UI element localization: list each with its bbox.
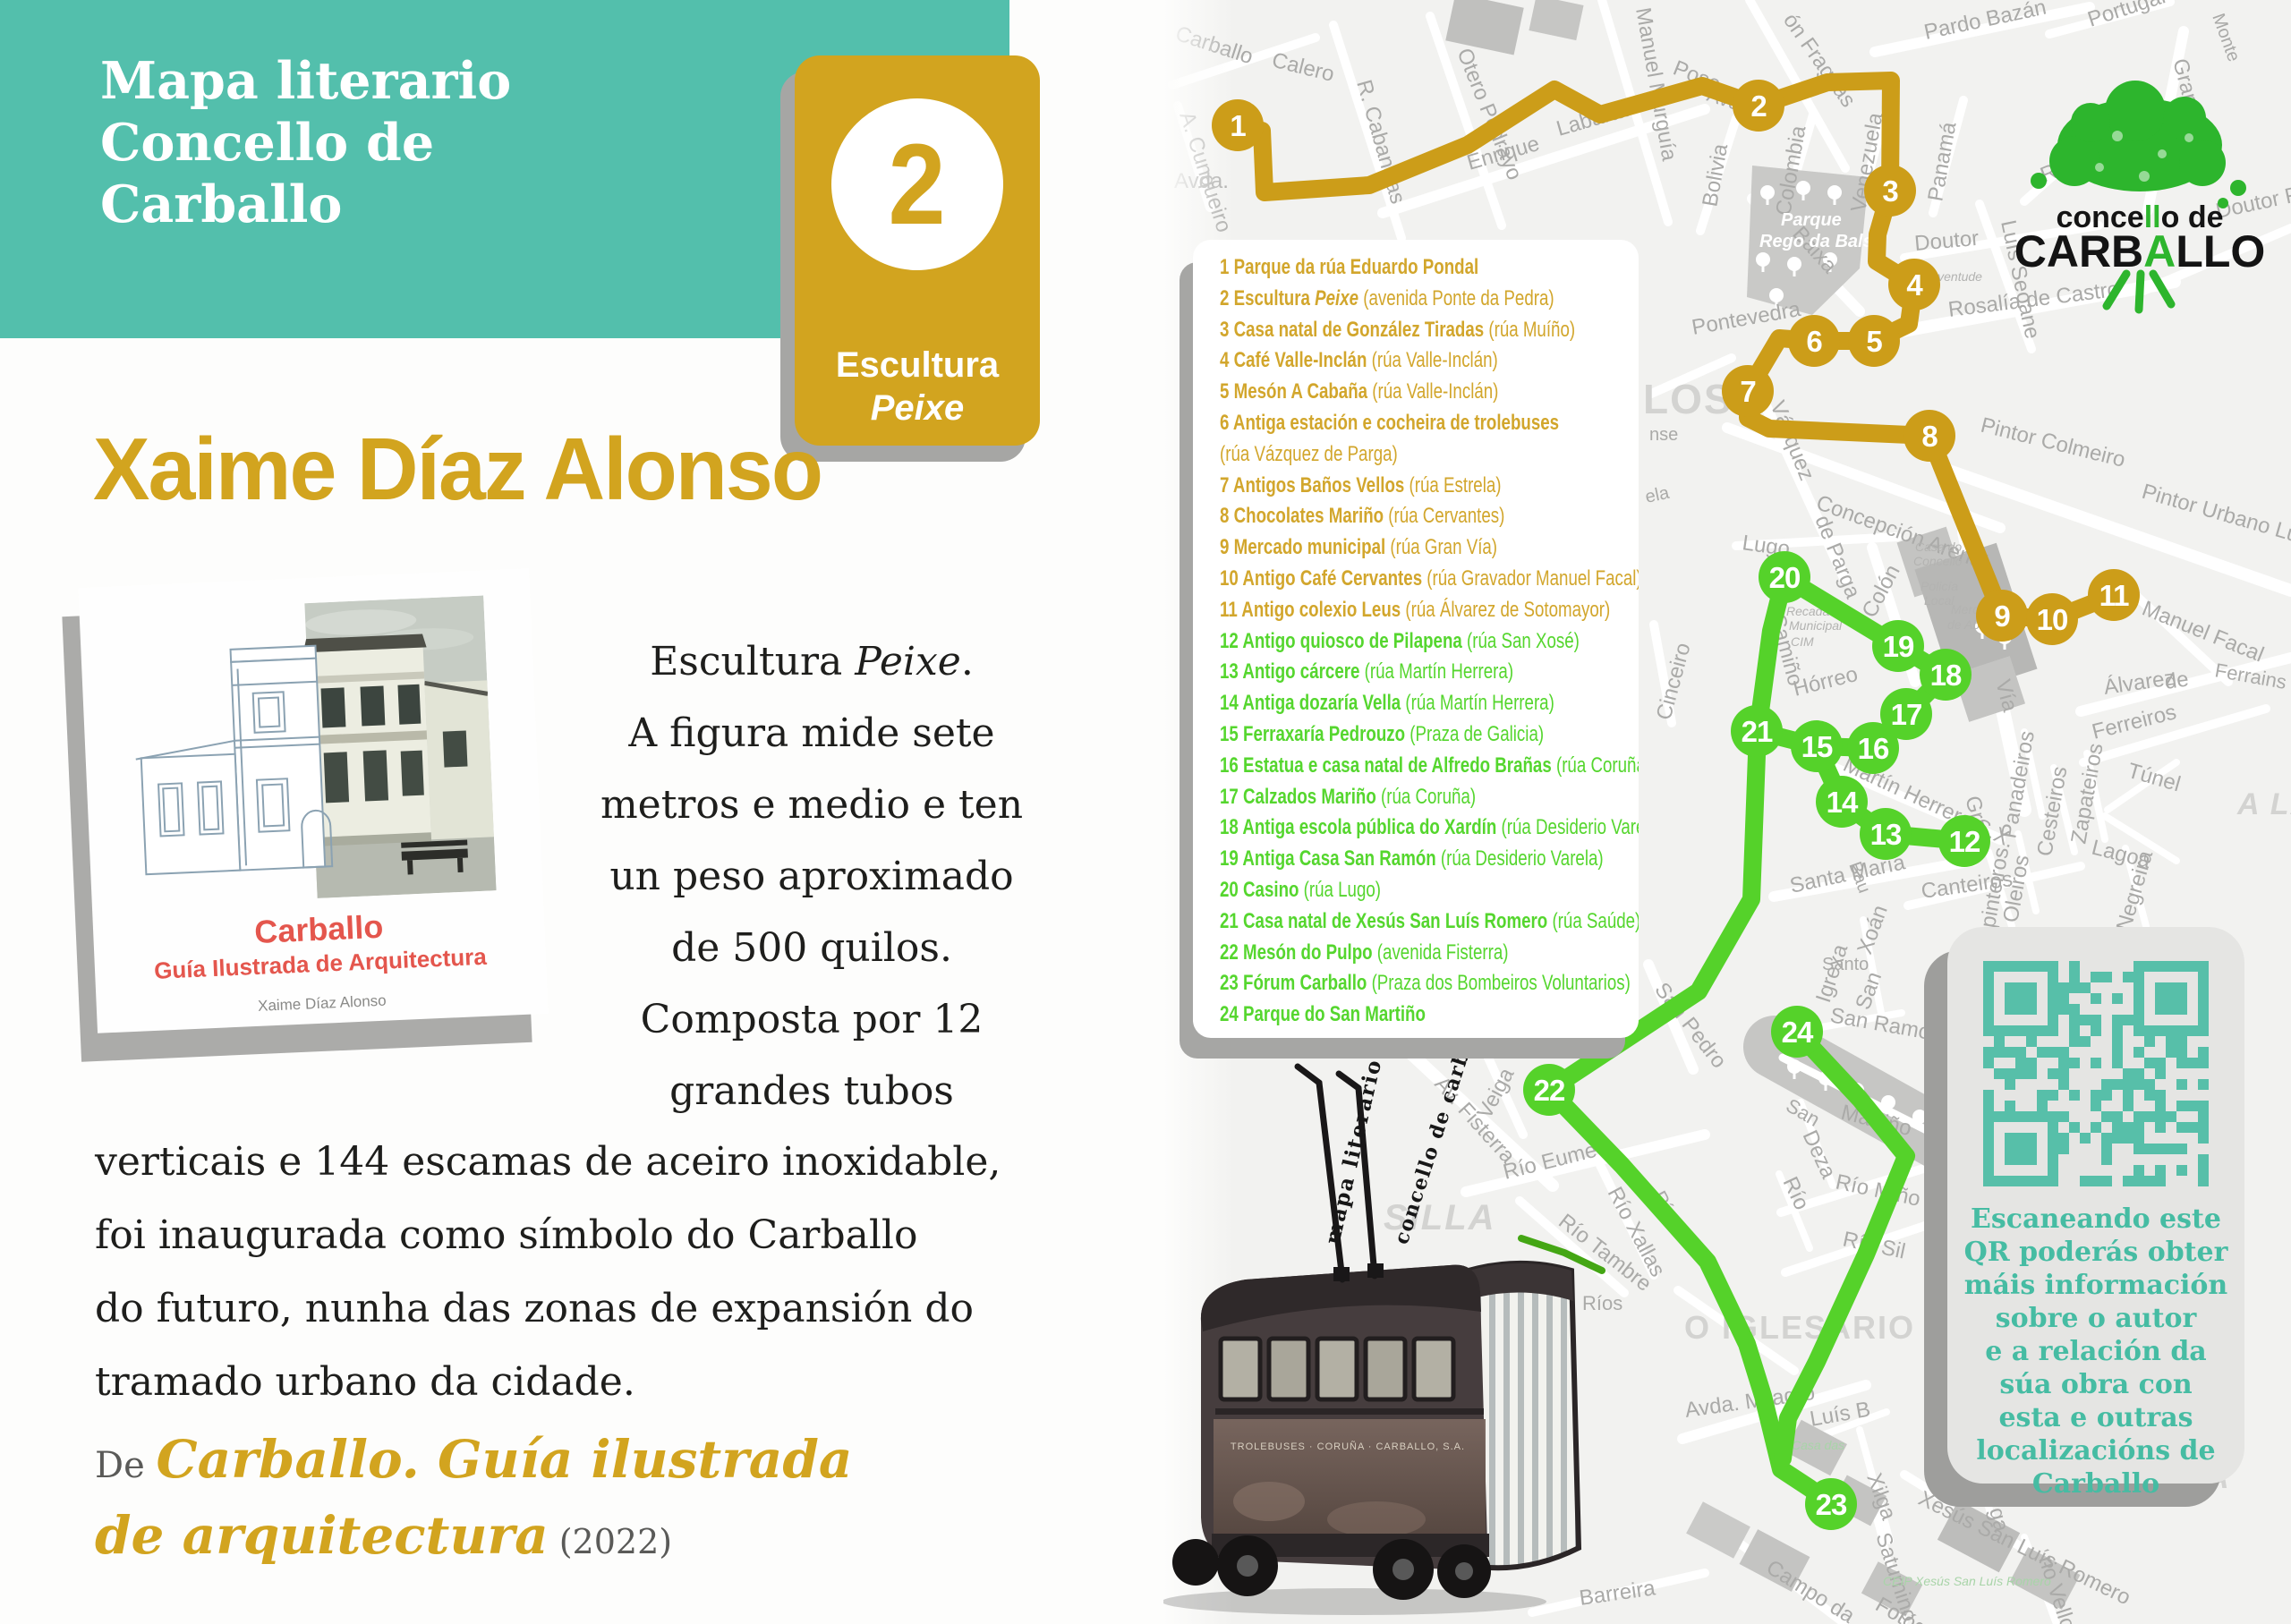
building-label: CIM <box>1791 634 1814 649</box>
pole-base <box>1367 1263 1384 1278</box>
marker-number: 24 <box>1782 1016 1814 1049</box>
legend-item-number: 9 <box>1220 535 1229 559</box>
legend-item-name: Casa natal de Xesús San Luís Romero <box>1243 909 1547 933</box>
marker-number: 21 <box>1742 715 1773 748</box>
map-marker-12: 12 <box>1938 815 1990 867</box>
legend-item-5: 5 Mesón A Cabaña (rúa Valle-Inclán) <box>1220 377 1546 408</box>
description-line: metros e medio e ten <box>530 769 1094 841</box>
marker-number: 4 <box>1906 268 1923 302</box>
legend-item-21: 21 Casa natal de Xesús San Luís Romero (… <box>1220 906 1546 938</box>
bus-side-text: TROLEBUSES · CORUÑA · CARBALLO, S.A. <box>1231 1441 1465 1452</box>
legend-item-name: Antigo cárcere <box>1242 659 1359 684</box>
legend-item-19: 19 Antiga Casa San Ramón (rúa Desiderio … <box>1220 844 1546 875</box>
legend-item-street: (rúa Coruña) <box>1381 785 1476 809</box>
legend-item-name: Fórum Carballo <box>1243 971 1367 995</box>
marker-number: 1 <box>1230 109 1246 142</box>
legend-item-number: 3 <box>1220 318 1229 342</box>
pole-base <box>1333 1267 1350 1281</box>
legend-item-number: 19 <box>1220 846 1239 871</box>
map-marker-19: 19 <box>1872 620 1924 672</box>
title-line: Concello de <box>100 112 511 174</box>
legend-item-street: (rúa Valle-Inclán) <box>1372 348 1498 372</box>
district-label: A LA <box>2236 787 2291 821</box>
legend-item-number: 4 <box>1220 348 1229 372</box>
description-line: Escultura Peixe. <box>530 626 1094 698</box>
map-marker-4: 4 <box>1888 259 1940 310</box>
marker-number: 14 <box>1827 786 1859 819</box>
location-badge: 2 Escultura Peixe <box>795 55 1040 446</box>
street-label: Santo <box>1822 955 1869 974</box>
legend-item-street: (rúa Coruña) <box>1556 753 1639 778</box>
marker-number: 18 <box>1930 659 1962 692</box>
building-label: Casa do <box>1915 540 1962 554</box>
description-line: un peso aproximado <box>530 841 1094 913</box>
map-marker-22: 22 <box>1523 1064 1575 1116</box>
legend-item-name: Mesón do Pulpo <box>1243 940 1373 965</box>
legend-item-street: (rúa Gran Vía) <box>1390 535 1497 559</box>
bus-shadow <box>1162 1588 1546 1615</box>
legend-item-name: Casino <box>1243 878 1299 902</box>
map-marker-5: 5 <box>1848 315 1900 367</box>
legend-item-street: (rúa San Xosé) <box>1467 629 1580 653</box>
legend-item-name: Calzados Mariño <box>1243 785 1376 809</box>
legend-item-6: 6 Antiga estación e cocheira de trolebus… <box>1220 408 1546 439</box>
legend-item-number: 6 <box>1220 411 1229 435</box>
qr-code <box>1983 961 2209 1186</box>
district-label: LOS <box>1643 376 1733 422</box>
book-cover-art <box>126 595 497 906</box>
marker-number: 6 <box>1806 325 1822 358</box>
page-title: Mapa literario Concello de Carballo <box>100 50 511 235</box>
legend-item-name: Café Valle-Inclán <box>1234 348 1367 372</box>
legend-item-number: 21 <box>1220 909 1239 933</box>
legend-item-street: (Praza dos Bombeiros Voluntarios) <box>1372 971 1631 995</box>
description-line: de 500 quilos. <box>530 913 1094 984</box>
legend-item-name: Chocolates Mariño <box>1234 504 1384 528</box>
qr-caption-line: Carballo <box>1947 1467 2244 1501</box>
description-line: foi inaugurada como símbolo do Carballo <box>95 1199 1151 1272</box>
building-label: Municipal <box>1789 618 1843 633</box>
legend-item-8: 8 Chocolates Mariño (rúa Cervantes) <box>1220 501 1546 532</box>
badge-number: 2 <box>889 119 946 251</box>
legend-item-number: 14 <box>1220 691 1239 715</box>
title-line: Mapa literario <box>100 50 511 112</box>
description-full-text: verticais e 144 escamas de aceiro inoxid… <box>95 1126 1151 1419</box>
legend-item-street: (rúa Desiderio Varela) <box>1502 815 1639 839</box>
map-marker-1: 1 <box>1212 99 1264 151</box>
legend-item-17: 17 Calzados Mariño (rúa Coruña) <box>1220 782 1546 813</box>
legend-item-6-wrap: (rúa Vázquez de Parga) <box>1220 439 1546 471</box>
legend-item-street: (rúa Cervantes) <box>1388 504 1504 528</box>
legend-item-street: (rúa Lugo) <box>1304 878 1381 902</box>
rust-spot <box>1233 1482 1305 1521</box>
legend-item-number: 15 <box>1220 722 1239 746</box>
legend-item-name: Casa natal de González Tiradas <box>1234 318 1485 342</box>
map-marker-21: 21 <box>1731 705 1783 757</box>
legend-item-street: (rúa Valle-Inclán) <box>1372 379 1498 404</box>
legend-item-number: 12 <box>1220 629 1239 653</box>
legend-item-number: 22 <box>1220 940 1239 965</box>
description-line: verticais e 144 escamas de aceiro inoxid… <box>95 1126 1151 1199</box>
legend-item-number: 5 <box>1220 379 1229 404</box>
rust-spot <box>1327 1501 1426 1537</box>
legend-item-name: Mercado municipal <box>1234 535 1386 559</box>
building-label: Concello <box>1913 554 1963 568</box>
book-cover: Carballo Guía Ilustrada de Arquitectura … <box>78 568 548 1033</box>
description-line: grandes tubos <box>530 1056 1094 1127</box>
map-marker-13: 13 <box>1860 808 1912 860</box>
legend-item-street: (rúa Martín Herrera) <box>1405 691 1554 715</box>
marker-number: 10 <box>2037 603 2068 636</box>
legend-item-name: Parque do San Martiño <box>1243 1002 1426 1026</box>
legend-item-name: Antiga escola pública do Xardín <box>1242 815 1496 839</box>
marker-number: 5 <box>1866 325 1882 358</box>
building-label: Policía <box>1921 579 1958 593</box>
legend-item-street: (rúa Martín Herrera) <box>1365 659 1513 684</box>
map-marker-24: 24 <box>1771 1006 1823 1058</box>
legend-item-4: 4 Café Valle-Inclán (rúa Valle-Inclán) <box>1220 345 1546 377</box>
legend-item-name: Parque da rúa Eduardo Pondal <box>1234 255 1479 279</box>
legend-item-3: 3 Casa natal de González Tiradas (rúa Mu… <box>1220 315 1546 346</box>
badge-label: Escultura <box>795 345 1040 386</box>
legend-item-18: 18 Antiga escola pública do Xardín (rúa … <box>1220 812 1546 844</box>
marker-number: 8 <box>1921 420 1938 453</box>
badge-label-italic: Peixe <box>795 388 1040 429</box>
legend-item-number: 20 <box>1220 878 1239 902</box>
legend-item-street: (rúa Muíño) <box>1488 318 1575 342</box>
legend-item-street: (Praza de Galicia) <box>1410 722 1544 746</box>
description-line: A figura mide sete <box>530 698 1094 769</box>
legend-item-number: 7 <box>1220 473 1229 497</box>
marker-number: 20 <box>1769 561 1801 594</box>
legend-item-number: 2 <box>1220 286 1229 310</box>
legend-item-22: 22 Mesón do Pulpo (avenida Fisterra) <box>1220 938 1546 969</box>
legend-item-9: 9 Mercado municipal (rúa Gran Vía) <box>1220 532 1546 564</box>
building-label: Casa das <box>1792 1438 1844 1452</box>
marker-number: 13 <box>1870 818 1902 851</box>
legend-item-name: Antigos Baños Vellos <box>1233 473 1404 497</box>
legend-item-13: 13 Antigo cárcere (rúa Martín Herrera) <box>1220 657 1546 688</box>
qr-caption: Escaneando esteQR poderás obtermáis info… <box>1947 1203 2244 1501</box>
legend-item-street: (avenida Fisterra) <box>1377 940 1509 965</box>
badge-number-circle: 2 <box>831 98 1003 270</box>
source-citation: De Carballo. Guía ilustrada de arquitect… <box>95 1428 852 1580</box>
qr-caption-line: súa obra con <box>1947 1368 2244 1401</box>
legend-item-16: 16 Estatua e casa natal de Alfredo Braña… <box>1220 751 1546 782</box>
map-marker-10: 10 <box>2026 593 2078 645</box>
marker-number: 3 <box>1882 174 1898 208</box>
legend-item-name: Estatua e casa natal de Alfredo Brañas <box>1243 753 1552 778</box>
map-marker-11: 11 <box>2088 569 2140 621</box>
legend-item-1: 1 Parque da rúa Eduardo Pondal <box>1220 252 1546 284</box>
legend-item-name: Escultura Peixe <box>1234 286 1358 310</box>
qr-card: Escaneando esteQR poderás obtermáis info… <box>1947 927 2244 1484</box>
map-marker-3: 3 <box>1864 165 1916 217</box>
street-label: de <box>2163 667 2190 693</box>
legend-item-7: 7 Antigos Baños Vellos (rúa Estrela) <box>1220 471 1546 502</box>
map-legend: 1 Parque da rúa Eduardo Pondal2 Escultur… <box>1193 240 1639 1038</box>
street-label: nse <box>1649 425 1678 445</box>
source-title-line2: de arquitectura <box>95 1505 549 1566</box>
map-marker-8: 8 <box>1903 410 1955 462</box>
street-label: Ríos <box>1582 1292 1622 1314</box>
legend-item-name: Antiga estación e cocheira de trolebuses <box>1233 411 1559 435</box>
map-marker-9: 9 <box>1976 590 2028 642</box>
legend-item-name: Mesón A Cabaña <box>1234 379 1367 404</box>
legend-item-2: 2 Escultura Peixe (avenida Ponte da Pedr… <box>1220 284 1546 315</box>
legend-item-street: (rúa Vázquez de Parga) <box>1220 442 1398 466</box>
source-prefix: De <box>95 1445 156 1486</box>
park-label: Parque <box>1781 210 1842 230</box>
legend-item-name: Antigo colexio Leus <box>1241 598 1401 622</box>
legend-item-name: Ferraxaría Pedrouzo <box>1243 722 1405 746</box>
bus-windows <box>1221 1339 1453 1399</box>
map-marker-6: 6 <box>1788 315 1840 367</box>
legend-item-number: 10 <box>1220 566 1239 591</box>
source-title-line1: Carballo. Guía ilustrada <box>156 1429 852 1490</box>
qr-caption-line: QR poderás obter <box>1947 1236 2244 1269</box>
legend-item-23: 23 Fórum Carballo (Praza dos Bombeiros V… <box>1220 968 1546 999</box>
legend-item-number: 1 <box>1220 255 1229 279</box>
marker-number: 19 <box>1883 630 1914 663</box>
legend-item-12: 12 Antigo quiosco de Pilapena (rúa San X… <box>1220 626 1546 658</box>
legend-item-15: 15 Ferraxaría Pedrouzo (Praza de Galicia… <box>1220 719 1546 751</box>
marker-number: 11 <box>2099 579 2130 612</box>
marker-number: 9 <box>1994 599 2010 633</box>
marker-number: 22 <box>1534 1074 1565 1107</box>
legend-item-name: Antigo Café Cervantes <box>1242 566 1422 591</box>
marker-number: 23 <box>1816 1488 1847 1521</box>
bus-sill <box>1215 1408 1484 1415</box>
legend-item-number: 23 <box>1220 971 1239 995</box>
description-line: Composta por 12 <box>530 984 1094 1056</box>
qr-caption-line: Escaneando este <box>1947 1203 2244 1236</box>
legend-item-number: 16 <box>1220 753 1239 778</box>
qr-caption-line: máis información <box>1947 1269 2244 1302</box>
marker-number: 16 <box>1858 732 1889 765</box>
legend-item-14: 14 Antiga dozaría Vella (rúa Martín Herr… <box>1220 688 1546 719</box>
legend-item-street: (rúa Álvarez de Sotomayor) <box>1405 598 1610 622</box>
author-name: Xaime Díaz Alonso <box>93 419 822 520</box>
legend-item-number: 17 <box>1220 785 1239 809</box>
map-marker-7: 7 <box>1722 365 1774 417</box>
marker-number: 2 <box>1750 89 1767 123</box>
legend-item-street: (rúa Saúde) <box>1552 909 1639 933</box>
marker-number: 12 <box>1949 825 1980 858</box>
legend-item-street: (rúa Estrela) <box>1410 473 1502 497</box>
park-label: Rego da Balsa <box>1759 232 1883 251</box>
description-line: do futuro, nunha das zonas de expansión … <box>95 1272 1151 1346</box>
map-marker-23: 23 <box>1805 1478 1857 1530</box>
district-label: O IGLESARIO <box>1684 1309 1915 1346</box>
marker-number: 7 <box>1740 375 1755 408</box>
description-wrapped-text: Escultura Peixe.A figura mide setemetros… <box>530 626 1094 1127</box>
legend-item-11: 11 Antigo colexio Leus (rúa Álvarez de S… <box>1220 595 1546 626</box>
source-year: (2022) <box>549 1522 672 1561</box>
legend-item-number: 24 <box>1220 1002 1239 1026</box>
legend-item-number: 13 <box>1220 659 1239 684</box>
marker-number: 15 <box>1801 730 1833 763</box>
marker-number: 17 <box>1891 698 1922 731</box>
map-marker-2: 2 <box>1733 80 1784 132</box>
title-line: Carballo <box>100 174 511 235</box>
legend-item-24: 24 Parque do San Martiño <box>1220 999 1546 1031</box>
qr-caption-line: localizacións de <box>1947 1434 2244 1467</box>
legend-item-street: (rúa Gravador Manuel Facal) <box>1427 566 1639 591</box>
legend-item-number: 8 <box>1220 504 1229 528</box>
legend-item-name: Antiga Casa San Ramón <box>1242 846 1435 871</box>
description-line: tramado urbano da cidade. <box>95 1346 1151 1419</box>
legend-item-number: 11 <box>1220 598 1238 622</box>
legend-item-number: 18 <box>1220 815 1239 839</box>
legend-item-name: Antiga dozaría Vella <box>1242 691 1401 715</box>
map-marker-14: 14 <box>1816 776 1868 828</box>
building-label: CEIP Xesús San Luís Romero <box>1883 1574 2051 1588</box>
qr-caption-line: esta e outras <box>1947 1401 2244 1434</box>
legend-item-name: Antigo quiosco de Pilapena <box>1242 629 1461 653</box>
qr-caption-line: sobre o autor <box>1947 1302 2244 1335</box>
qr-caption-line: e a relación da <box>1947 1335 2244 1368</box>
map-marker-20: 20 <box>1759 551 1810 603</box>
map-marker-15: 15 <box>1791 720 1843 772</box>
legend-item-10: 10 Antigo Café Cervantes (rúa Gravador M… <box>1220 564 1546 595</box>
logo-line2: CARBALLO <box>2014 226 2266 276</box>
legend-item-street: (avenida Ponte da Pedra) <box>1363 286 1554 310</box>
legend-item-20: 20 Casino (rúa Lugo) <box>1220 875 1546 906</box>
map-marker-17: 17 <box>1880 688 1932 740</box>
map-marker-18: 18 <box>1920 649 1972 701</box>
legend-item-street: (rúa Desiderio Varela) <box>1441 846 1604 871</box>
